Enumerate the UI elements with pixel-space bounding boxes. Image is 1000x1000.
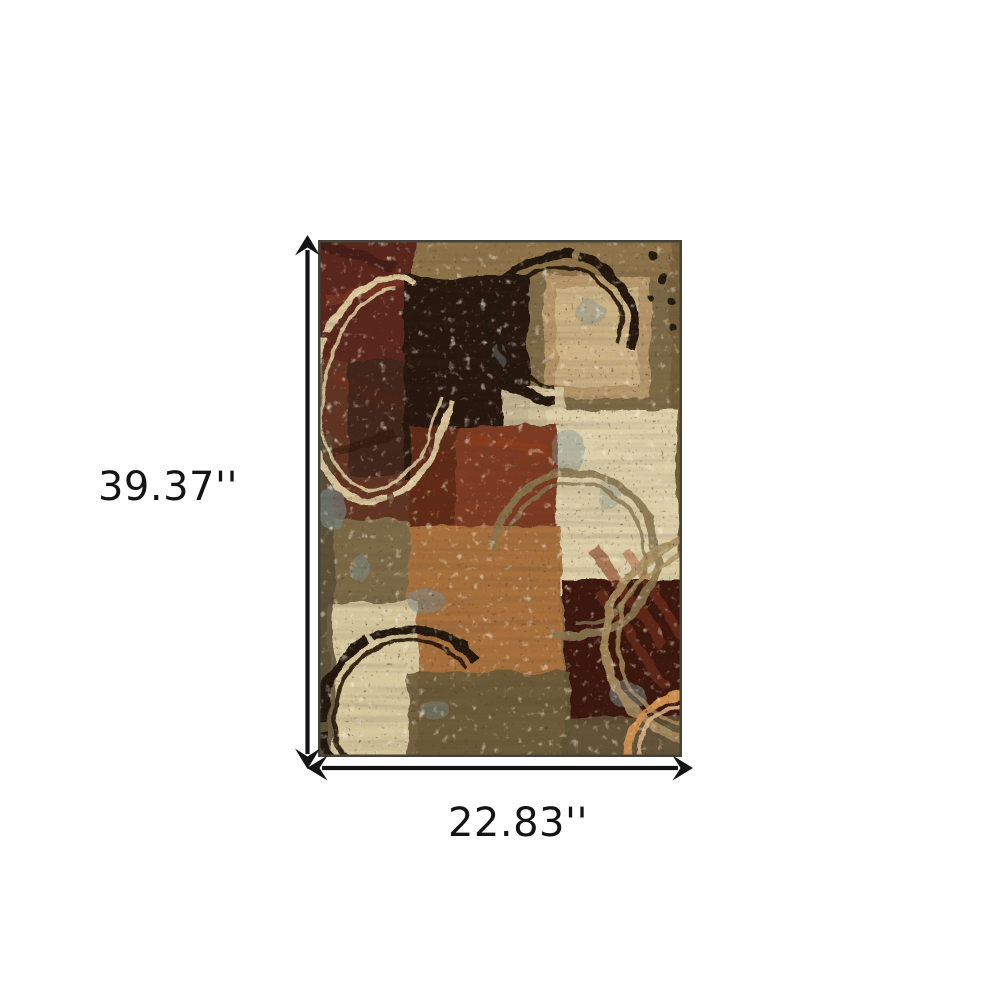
product-dimension-diagram: 39.37'' 22.83''	[0, 0, 1000, 1000]
pile-streak-overlay	[318, 240, 682, 757]
height-label: 39.37''	[38, 460, 298, 514]
rug-pattern	[318, 240, 682, 757]
width-dimension-arrow	[306, 754, 694, 782]
height-dimension-arrow	[294, 234, 322, 770]
width-label: 22.83''	[388, 796, 648, 850]
rug-image	[318, 240, 682, 757]
